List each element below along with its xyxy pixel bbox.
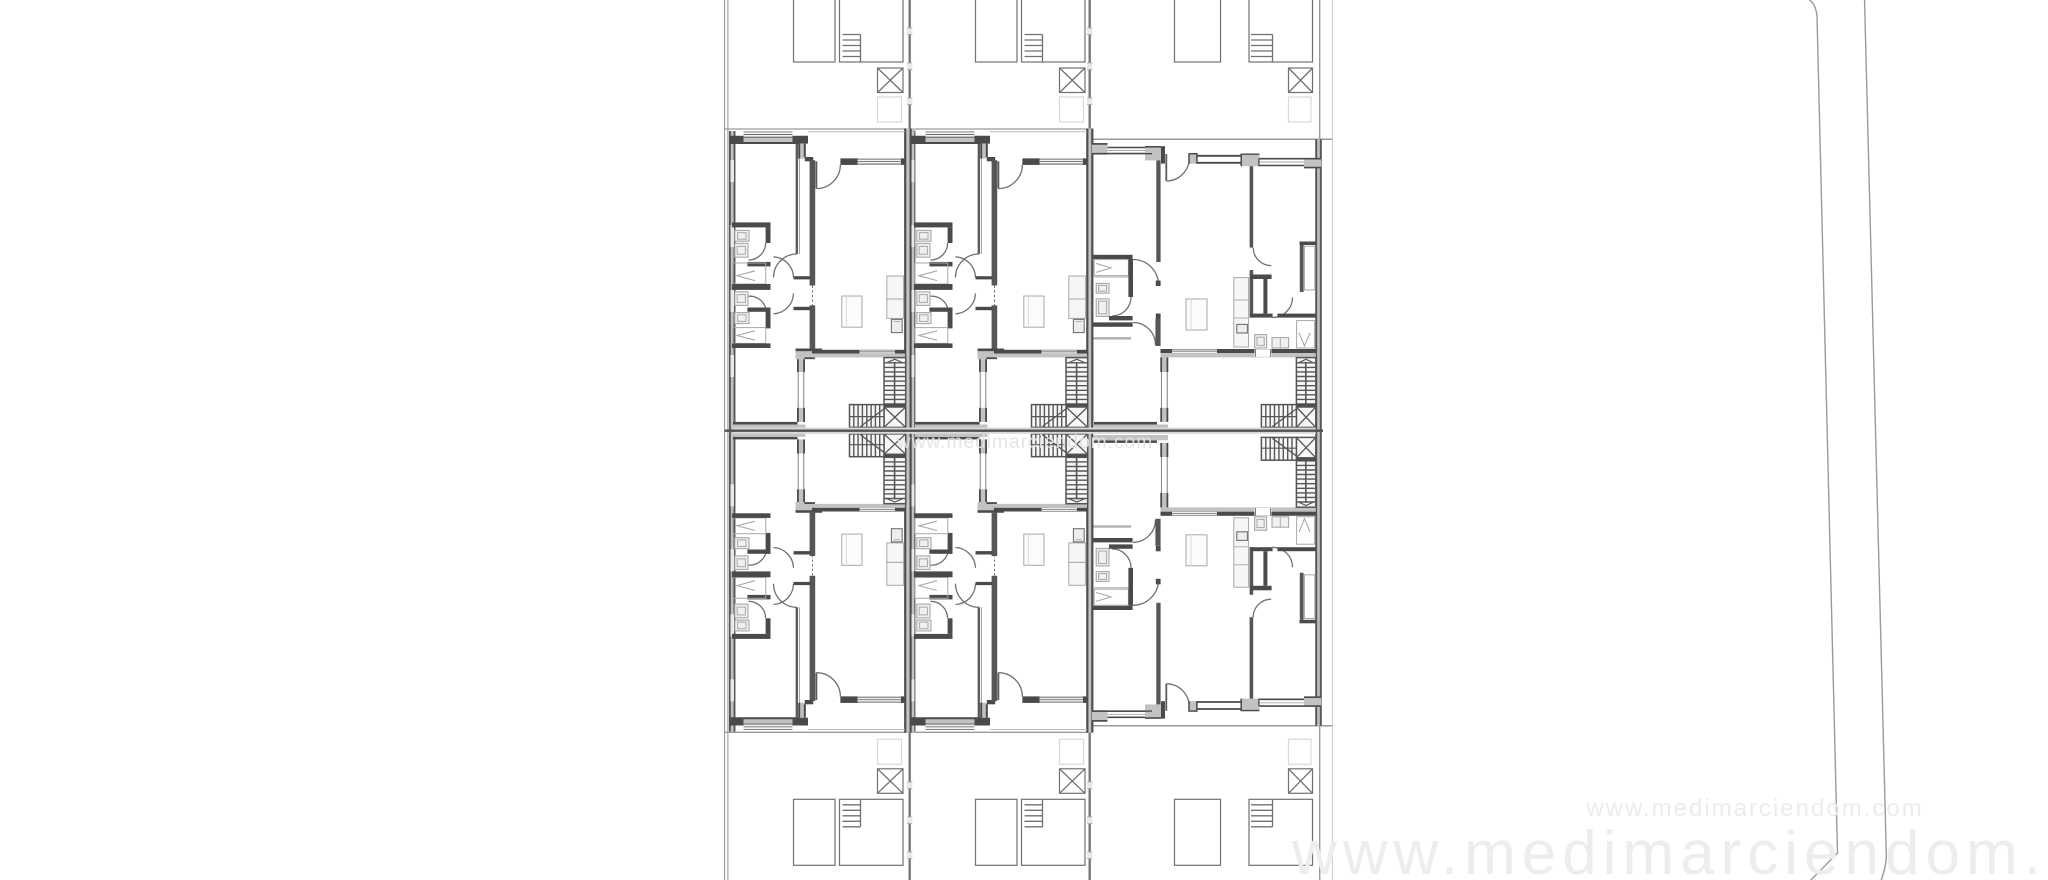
- svg-text:www.medimarciendom.com: www.medimarciendom.com: [1291, 819, 2048, 880]
- svg-text:www.medimarciendom.com: www.medimarciendom.com: [1585, 795, 1923, 822]
- svg-text:www.medimarciendom.com: www.medimarciendom.com: [896, 432, 1154, 453]
